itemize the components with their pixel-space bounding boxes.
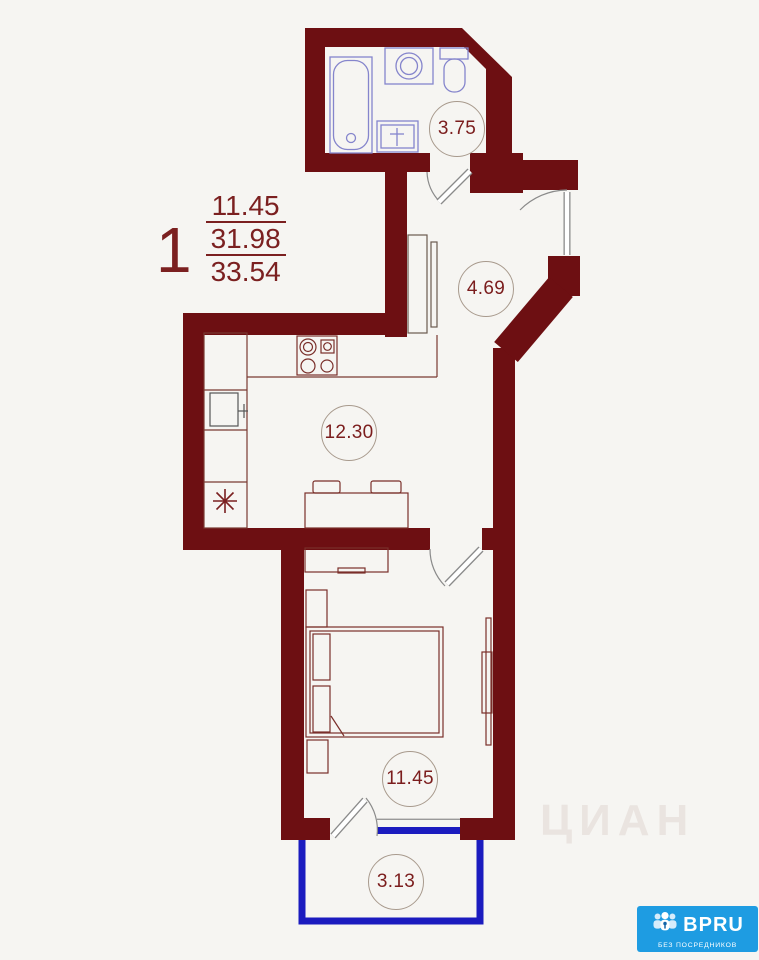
logo-name: BPRU [683, 915, 744, 935]
area-living: 11.45 [206, 190, 286, 223]
cian-watermark: ЦИАН [540, 796, 695, 846]
area-total: 33.54 [206, 256, 286, 287]
area-usable: 31.98 [206, 223, 286, 256]
people-key-icon [651, 910, 679, 941]
apartment-number: 1 [156, 190, 192, 287]
bed [306, 627, 443, 737]
logo-tagline: БЕЗ ПОСРЕДНИКОВ [658, 942, 737, 949]
area-label-bedroom: 11.45 [382, 751, 438, 807]
bedroom-door [430, 549, 481, 586]
hallway-wardrobe [408, 235, 437, 333]
balcony-door [333, 798, 377, 836]
radiator [482, 618, 492, 745]
nightstand [307, 740, 328, 773]
dining-table [305, 481, 408, 528]
floor-plan-page: 3.75 4.69 12.30 11.45 3.13 1 11.45 31.98… [0, 0, 759, 960]
area-label-hallway: 4.69 [458, 261, 514, 317]
bathroom-door [427, 171, 470, 202]
kitchen-sink [210, 393, 248, 426]
bpru-logo: BPRU БЕЗ ПОСРЕДНИКОВ [637, 906, 758, 952]
stove [297, 336, 337, 375]
balcony-window [377, 819, 460, 834]
cabinet [306, 590, 327, 627]
vent-symbol [213, 489, 237, 513]
entrance-door [520, 190, 567, 255]
area-label-kitchen: 12.30 [321, 405, 377, 461]
dresser [305, 548, 388, 573]
apartment-areas: 11.45 31.98 33.54 [206, 190, 286, 287]
area-label-balcony: 3.13 [368, 854, 424, 910]
apartment-summary: 1 11.45 31.98 33.54 [156, 190, 286, 287]
area-label-bathroom: 3.75 [429, 101, 485, 157]
walls [183, 28, 580, 840]
